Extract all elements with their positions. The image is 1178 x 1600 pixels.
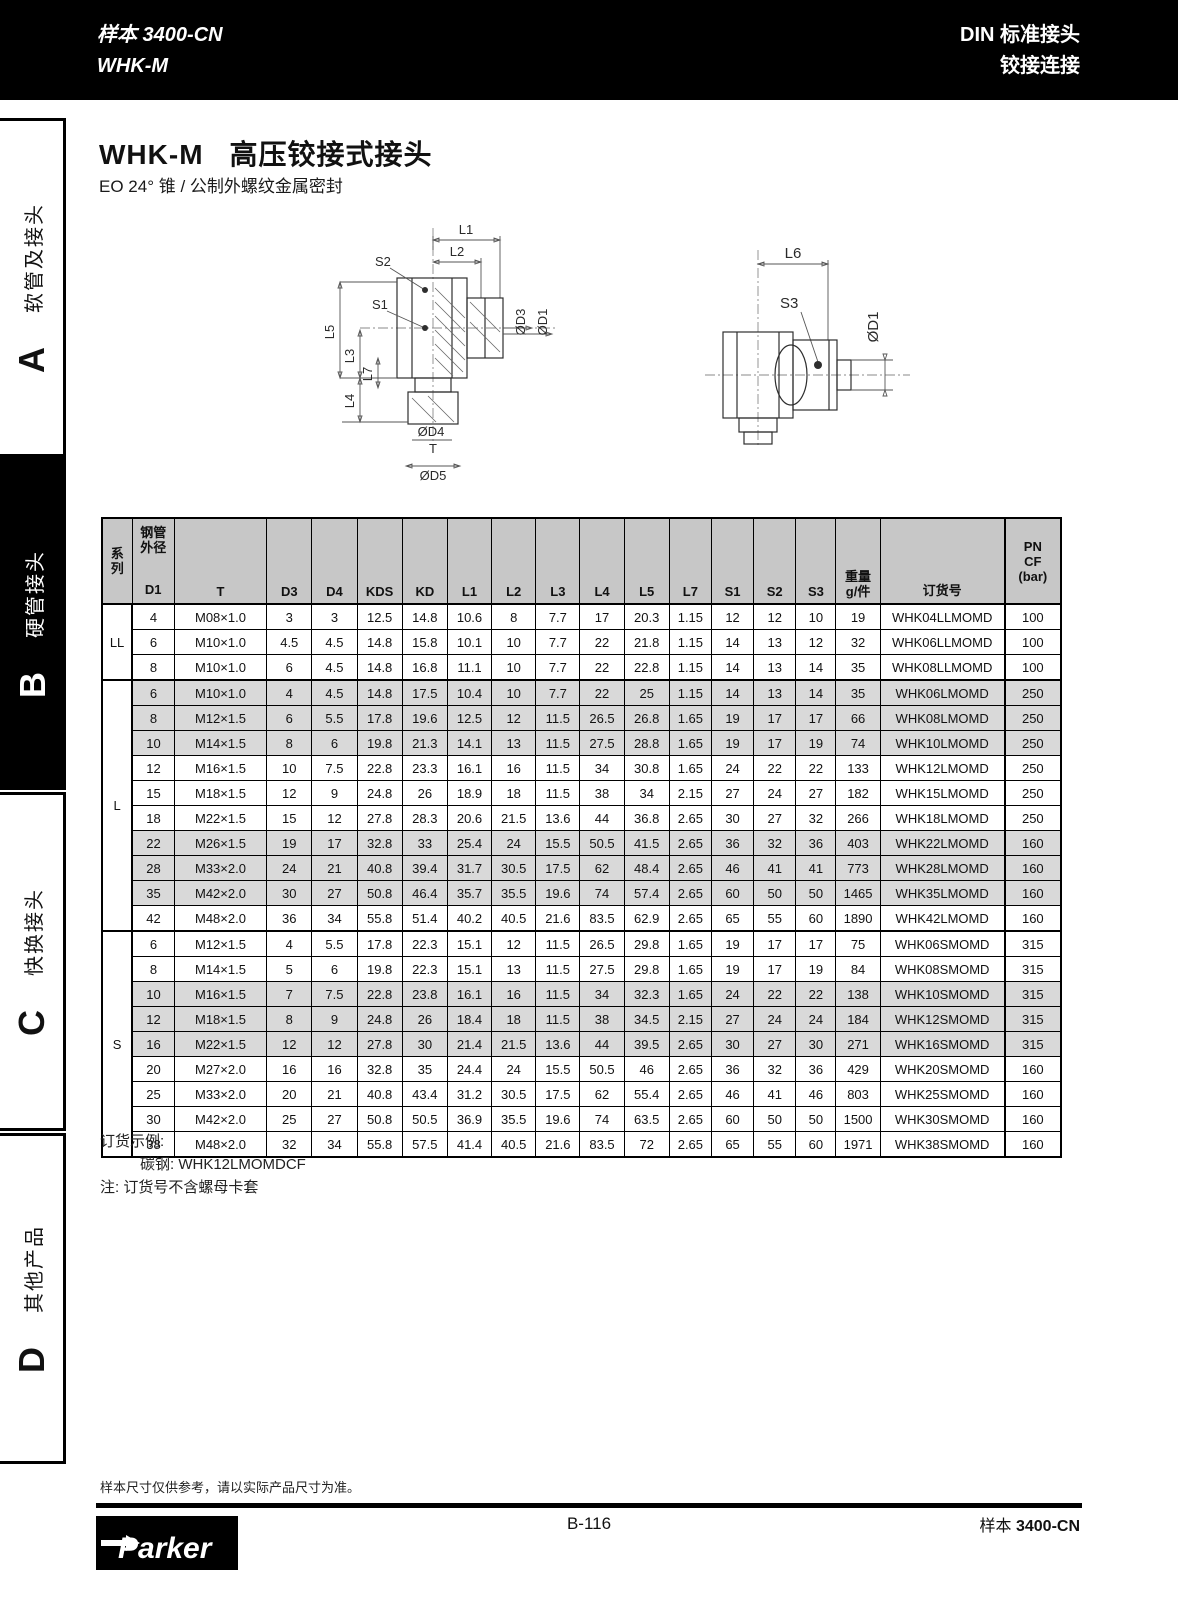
table-cell: 31.2	[447, 1082, 491, 1107]
table-cell: 26.5	[580, 931, 624, 957]
table-cell: 22.3	[402, 957, 447, 982]
order-code-cell: WHK08SMOMD	[880, 957, 1005, 982]
table-cell: 24	[711, 756, 753, 781]
ordering-example-title: 订货示例:	[100, 1130, 306, 1153]
table-cell: 36	[711, 1057, 753, 1082]
table-cell: 22.8	[624, 655, 669, 681]
drawing-section-view: L1 L2 S	[300, 210, 622, 485]
table-row: 12M16×1.5107.522.823.316.11611.53430.81.…	[102, 756, 1061, 781]
table-cell: 30	[267, 881, 312, 906]
table-cell: 15	[132, 781, 174, 806]
table-cell: 21	[312, 856, 357, 881]
parker-logo-text: Parker	[118, 1532, 214, 1565]
table-cell: 12	[754, 604, 796, 630]
col-s3: S3	[796, 518, 836, 604]
table-cell: 17	[312, 831, 357, 856]
table-cell: 35.7	[447, 881, 491, 906]
table-cell: 83.5	[580, 1132, 624, 1158]
table-cell: 160	[1005, 1082, 1061, 1107]
table-cell: 35	[402, 1057, 447, 1082]
sidebar-label-a: 软管及接头	[17, 203, 46, 313]
table-cell: 11.5	[536, 1007, 580, 1032]
table-cell: 19.6	[402, 706, 447, 731]
table-cell: 8	[492, 604, 536, 630]
table-cell: 13	[754, 655, 796, 681]
table-cell: 25	[267, 1107, 312, 1132]
table-cell: 26.8	[624, 706, 669, 731]
table-cell: 315	[1005, 957, 1061, 982]
table-cell: 160	[1005, 1107, 1061, 1132]
sidebar-tab-d: D 其他产品	[0, 1133, 66, 1464]
header-catalog: 样本 3400-CN	[97, 20, 223, 51]
table-cell: 46	[624, 1057, 669, 1082]
table-cell: 30	[711, 1032, 753, 1057]
col-d3: D3	[267, 518, 312, 604]
table-cell: 28	[132, 856, 174, 881]
table-cell: 21.4	[447, 1032, 491, 1057]
table-cell: 15.5	[536, 1057, 580, 1082]
table-cell: 32.8	[357, 831, 402, 856]
table-cell: 250	[1005, 781, 1061, 806]
table-cell: M10×1.0	[174, 655, 266, 681]
table-cell: 30	[711, 806, 753, 831]
table-cell: 24	[492, 831, 536, 856]
order-code-cell: WHK30SMOMD	[880, 1107, 1005, 1132]
table-cell: 23.3	[402, 756, 447, 781]
table-cell: 55.4	[624, 1082, 669, 1107]
dim-S3: S3	[780, 295, 798, 312]
table-cell: 2.65	[669, 831, 711, 856]
table-cell: M18×1.5	[174, 1007, 266, 1032]
table-cell: 6	[267, 706, 312, 731]
order-code-cell: WHK08LMOMD	[880, 706, 1005, 731]
table-cell: 11.5	[536, 982, 580, 1007]
table-cell: 160	[1005, 831, 1061, 856]
table-cell: 1.15	[669, 680, 711, 706]
sidebar-label-c: 快换接头	[17, 888, 46, 976]
table-cell: 63.5	[624, 1107, 669, 1132]
dim-D1: ØD1	[535, 309, 550, 336]
table-row: 12M18×1.58924.82618.41811.53834.52.15272…	[102, 1007, 1061, 1032]
table-cell: 21.5	[492, 806, 536, 831]
table-cell: 26	[402, 781, 447, 806]
table-cell: 315	[1005, 1032, 1061, 1057]
order-code-cell: WHK08LLMOMD	[880, 655, 1005, 681]
sidebar-tab-c: C 快换接头	[0, 792, 66, 1131]
table-cell: 14	[796, 655, 836, 681]
table-cell: 12	[711, 604, 753, 630]
dim-T: T	[429, 441, 437, 456]
table-cell: 2.65	[669, 1082, 711, 1107]
table-cell: 14	[796, 680, 836, 706]
table-cell: 17.8	[357, 931, 402, 957]
table-cell: 11.5	[536, 731, 580, 756]
table-cell: 32	[796, 806, 836, 831]
series-cell: L	[102, 680, 132, 931]
sidebar-tab-b: B 硬管接头	[0, 457, 66, 790]
table-cell: 1.15	[669, 630, 711, 655]
order-code-cell: WHK38SMOMD	[880, 1132, 1005, 1158]
drawing-side-view: L6 S3 ØD1	[665, 232, 945, 450]
table-cell: 35.5	[492, 881, 536, 906]
table-cell: 51.4	[402, 906, 447, 932]
table-cell: 18	[492, 781, 536, 806]
table-cell: M22×1.5	[174, 1032, 266, 1057]
table-cell: 22	[580, 630, 624, 655]
table-cell: M33×2.0	[174, 1082, 266, 1107]
table-cell: 27	[312, 881, 357, 906]
table-cell: 315	[1005, 931, 1061, 957]
table-cell: 44	[580, 806, 624, 831]
table-row: 10M16×1.577.522.823.816.11611.53432.31.6…	[102, 982, 1061, 1007]
sidebar-letter-d: D	[11, 1347, 53, 1373]
table-row: 25M33×2.0202140.843.431.230.517.56255.42…	[102, 1082, 1061, 1107]
col-d4: D4	[312, 518, 357, 604]
table-cell: M42×2.0	[174, 1107, 266, 1132]
table-cell: 1.65	[669, 931, 711, 957]
table-cell: 34	[312, 906, 357, 932]
table-cell: 1971	[836, 1132, 880, 1158]
table-cell: 22.8	[357, 756, 402, 781]
order-code-cell: WHK15LMOMD	[880, 781, 1005, 806]
table-cell: 100	[1005, 604, 1061, 630]
table-cell: 35	[836, 680, 880, 706]
table-cell: 35.5	[492, 1107, 536, 1132]
table-cell: 7.7	[536, 680, 580, 706]
table-cell: 19	[711, 931, 753, 957]
ordering-example-line: 碳钢: WHK12LMOMDCF	[100, 1153, 306, 1176]
table-cell: 22	[132, 831, 174, 856]
table-cell: 4	[267, 931, 312, 957]
table-cell: 2.65	[669, 906, 711, 932]
table-cell: 10	[796, 604, 836, 630]
table-row: 22M26×1.5191732.83325.42415.550.541.52.6…	[102, 831, 1061, 856]
col-l5: L5	[624, 518, 669, 604]
table-cell: 39.5	[624, 1032, 669, 1057]
table-cell: 32	[754, 1057, 796, 1082]
order-code-cell: WHK10LMOMD	[880, 731, 1005, 756]
table-cell: 60	[796, 906, 836, 932]
col-l7: L7	[669, 518, 711, 604]
table-cell: 22	[580, 655, 624, 681]
table-cell: 22	[754, 982, 796, 1007]
table-cell: 160	[1005, 856, 1061, 881]
table-cell: 46	[796, 1082, 836, 1107]
header-model: WHK-M	[97, 51, 223, 82]
table-cell: 14.8	[402, 604, 447, 630]
table-cell: 36.8	[624, 806, 669, 831]
table-row: 20M27×2.0161632.83524.42415.550.5462.653…	[102, 1057, 1061, 1082]
table-cell: 27	[711, 781, 753, 806]
table-row: 10M14×1.58619.821.314.11311.527.528.81.6…	[102, 731, 1061, 756]
table-cell: 24	[796, 1007, 836, 1032]
table-cell: 315	[1005, 982, 1061, 1007]
table-cell: 100	[1005, 655, 1061, 681]
dim-L2: L2	[450, 244, 464, 259]
table-cell: 8	[132, 655, 174, 681]
table-cell: 74	[836, 731, 880, 756]
table-cell: 10	[132, 982, 174, 1007]
table-cell: M26×1.5	[174, 831, 266, 856]
table-cell: 11.5	[536, 706, 580, 731]
header-left-block: 样本 3400-CN WHK-M	[97, 20, 223, 82]
table-cell: 160	[1005, 881, 1061, 906]
order-code-cell: WHK42LMOMD	[880, 906, 1005, 932]
table-row: LL4M08×1.03312.514.810.687.71720.31.1512…	[102, 604, 1061, 630]
table-cell: 27.5	[580, 731, 624, 756]
col-s1: S1	[711, 518, 753, 604]
table-cell: 4.5	[312, 655, 357, 681]
table-cell: 11.5	[536, 957, 580, 982]
table-cell: M16×1.5	[174, 982, 266, 1007]
dim-L5: L5	[322, 325, 337, 339]
table-cell: 19	[267, 831, 312, 856]
table-cell: 57.5	[402, 1132, 447, 1158]
table-cell: 14	[711, 630, 753, 655]
table-cell: 14.8	[357, 680, 402, 706]
table-cell: M18×1.5	[174, 781, 266, 806]
page-title: WHK-M高压铰接式接头	[99, 133, 433, 173]
table-cell: 84	[836, 957, 880, 982]
table-cell: 4	[267, 680, 312, 706]
page-header-bar: 样本 3400-CN WHK-M DIN 标准接头 铰接连接	[0, 0, 1178, 100]
table-cell: 11.5	[536, 756, 580, 781]
table-cell: 100	[1005, 630, 1061, 655]
table-cell: 8	[267, 1007, 312, 1032]
table-cell: 50	[754, 881, 796, 906]
table-cell: 34	[580, 982, 624, 1007]
table-cell: 18.9	[447, 781, 491, 806]
table-cell: 40.2	[447, 906, 491, 932]
table-cell: 38	[580, 781, 624, 806]
table-cell: 4.5	[312, 680, 357, 706]
table-cell: 14.8	[357, 630, 402, 655]
table-row: 8M14×1.55619.822.315.11311.527.529.81.65…	[102, 957, 1061, 982]
table-cell: 17.5	[536, 856, 580, 881]
table-cell: 65	[711, 906, 753, 932]
table-cell: 16	[267, 1057, 312, 1082]
table-cell: 133	[836, 756, 880, 781]
order-code-cell: WHK18LMOMD	[880, 806, 1005, 831]
parker-logo: Parker	[96, 1516, 238, 1575]
table-cell: 773	[836, 856, 880, 881]
table-cell: 2.65	[669, 1032, 711, 1057]
table-cell: 62	[580, 1082, 624, 1107]
table-cell: 26.5	[580, 706, 624, 731]
table-cell: 25	[624, 680, 669, 706]
table-row: 42M48×2.0363455.851.440.240.521.683.562.…	[102, 906, 1061, 932]
table-cell: 1.65	[669, 731, 711, 756]
table-header-row: 系 列 钢管外径 D1 T D3 D4 KDS KD L1 L2 L3 L4	[102, 518, 1061, 604]
dim-D4: ØD4	[418, 424, 445, 439]
table-cell: 250	[1005, 706, 1061, 731]
table-cell: 12	[132, 1007, 174, 1032]
table-cell: 17	[754, 957, 796, 982]
table-cell: 160	[1005, 906, 1061, 932]
table-cell: 9	[312, 1007, 357, 1032]
table-cell: 2.65	[669, 1132, 711, 1158]
order-code-cell: WHK12SMOMD	[880, 1007, 1005, 1032]
table-cell: 74	[580, 1107, 624, 1132]
table-cell: 8	[132, 706, 174, 731]
table-cell: 403	[836, 831, 880, 856]
table-cell: 7.7	[536, 604, 580, 630]
table-cell: 3	[312, 604, 357, 630]
col-kd: KD	[402, 518, 447, 604]
table-cell: 5.5	[312, 931, 357, 957]
table-cell: 2.15	[669, 781, 711, 806]
table-cell: 182	[836, 781, 880, 806]
table-cell: 30.8	[624, 756, 669, 781]
table-cell: 35	[132, 881, 174, 906]
col-weight: 重量 g/件	[836, 518, 880, 604]
table-row: L6M10×1.044.514.817.510.4107.722251.1514…	[102, 680, 1061, 706]
table-cell: 46	[711, 856, 753, 881]
series-cell: LL	[102, 604, 132, 680]
table-cell: 24.4	[447, 1057, 491, 1082]
table-cell: 13	[492, 731, 536, 756]
table-cell: M08×1.0	[174, 604, 266, 630]
table-cell: 1.65	[669, 706, 711, 731]
table-cell: 12	[312, 806, 357, 831]
table-cell: 10	[132, 731, 174, 756]
table-cell: 74	[580, 881, 624, 906]
product-name: 高压铰接式接头	[230, 139, 433, 170]
table-cell: 19.8	[357, 731, 402, 756]
table-body: LL4M08×1.03312.514.810.687.71720.31.1512…	[102, 604, 1061, 1157]
table-cell: 16	[132, 1032, 174, 1057]
table-cell: 12	[796, 630, 836, 655]
order-code-cell: WHK04LLMOMD	[880, 604, 1005, 630]
table-cell: 31.7	[447, 856, 491, 881]
table-cell: 19.8	[357, 957, 402, 982]
dim-L7: L7	[360, 367, 375, 381]
table-cell: 6	[312, 731, 357, 756]
table-cell: 8	[267, 731, 312, 756]
table-cell: 7	[267, 982, 312, 1007]
table-cell: 16	[492, 756, 536, 781]
dim-S1: S1	[372, 297, 388, 312]
table-cell: 32.3	[624, 982, 669, 1007]
table-cell: 32.8	[357, 1057, 402, 1082]
table-cell: 27	[711, 1007, 753, 1032]
table-cell: 24.8	[357, 1007, 402, 1032]
table-cell: 250	[1005, 680, 1061, 706]
col-s2: S2	[754, 518, 796, 604]
footer-catalog: 样本 3400-CN	[980, 1512, 1080, 1536]
dim-L4: L4	[342, 394, 357, 408]
table-cell: 40.5	[492, 1132, 536, 1158]
table-cell: 315	[1005, 1007, 1061, 1032]
table-cell: 22.8	[357, 982, 402, 1007]
table-cell: M14×1.5	[174, 957, 266, 982]
table-cell: 17	[754, 731, 796, 756]
table-cell: 6	[132, 680, 174, 706]
table-cell: 35	[836, 655, 880, 681]
sidebar-label-d: 其他产品	[17, 1225, 46, 1313]
table-cell: 60	[711, 881, 753, 906]
table-cell: 4.5	[267, 630, 312, 655]
table-cell: 40.8	[357, 856, 402, 881]
table-cell: 29.8	[624, 957, 669, 982]
table-cell: 36.9	[447, 1107, 491, 1132]
table-cell: 50	[796, 1107, 836, 1132]
table-cell: 44	[580, 1032, 624, 1057]
table-cell: 24	[492, 1057, 536, 1082]
table-cell: 17	[796, 706, 836, 731]
table-cell: 24	[754, 1007, 796, 1032]
table-cell: 2.15	[669, 1007, 711, 1032]
table-cell: 6	[267, 655, 312, 681]
table-cell: 5	[267, 957, 312, 982]
table-cell: 20.6	[447, 806, 491, 831]
table-cell: 429	[836, 1057, 880, 1082]
table-cell: 60	[711, 1107, 753, 1132]
table-cell: 16.8	[402, 655, 447, 681]
table-row: 35M42×2.0302750.846.435.735.519.67457.42…	[102, 881, 1061, 906]
col-order: 订货号	[880, 518, 1005, 604]
col-l3: L3	[536, 518, 580, 604]
table-cell: 17	[754, 706, 796, 731]
table-cell: 33	[402, 831, 447, 856]
table-cell: 46	[711, 1082, 753, 1107]
header-category: DIN 标准接头	[960, 20, 1080, 51]
table-cell: 14	[711, 655, 753, 681]
table-cell: 41	[754, 1082, 796, 1107]
table-cell: 25	[132, 1082, 174, 1107]
table-cell: 10.4	[447, 680, 491, 706]
table-cell: 138	[836, 982, 880, 1007]
table-cell: 32	[836, 630, 880, 655]
table-cell: 50	[754, 1107, 796, 1132]
header-subcategory: 铰接连接	[960, 51, 1080, 82]
table-cell: 23.8	[402, 982, 447, 1007]
table-cell: M33×2.0	[174, 856, 266, 881]
dim-D5: ØD5	[420, 468, 447, 483]
table-cell: 27.5	[580, 957, 624, 982]
table-cell: 32	[754, 831, 796, 856]
table-cell: 17.5	[536, 1082, 580, 1107]
table-cell: 24	[754, 781, 796, 806]
order-code-cell: WHK12LMOMD	[880, 756, 1005, 781]
table-cell: 160	[1005, 1057, 1061, 1082]
table-cell: 36	[267, 906, 312, 932]
table-row: 6M10×1.04.54.514.815.810.1107.72221.81.1…	[102, 630, 1061, 655]
table-cell: 34	[312, 1132, 357, 1158]
table-cell: 12	[267, 1032, 312, 1057]
table-cell: 19	[711, 957, 753, 982]
table-cell: 3	[267, 604, 312, 630]
table-cell: 22	[580, 680, 624, 706]
table-cell: 22	[796, 756, 836, 781]
table-cell: 22	[754, 756, 796, 781]
table-cell: 20	[132, 1057, 174, 1082]
table-cell: 41	[796, 856, 836, 881]
table-cell: 9	[312, 781, 357, 806]
table-cell: 7.5	[312, 982, 357, 1007]
order-code-cell: WHK35LMOMD	[880, 881, 1005, 906]
table-cell: 18	[492, 1007, 536, 1032]
table-cell: 19.6	[536, 1107, 580, 1132]
table-cell: 22	[796, 982, 836, 1007]
table-cell: 57.4	[624, 881, 669, 906]
table-cell: 13.6	[536, 1032, 580, 1057]
table-row: 16M22×1.5121227.83021.421.513.64439.52.6…	[102, 1032, 1061, 1057]
table-cell: 10	[267, 756, 312, 781]
table-cell: 6	[132, 630, 174, 655]
table-cell: 12	[132, 756, 174, 781]
table-cell: 250	[1005, 731, 1061, 756]
